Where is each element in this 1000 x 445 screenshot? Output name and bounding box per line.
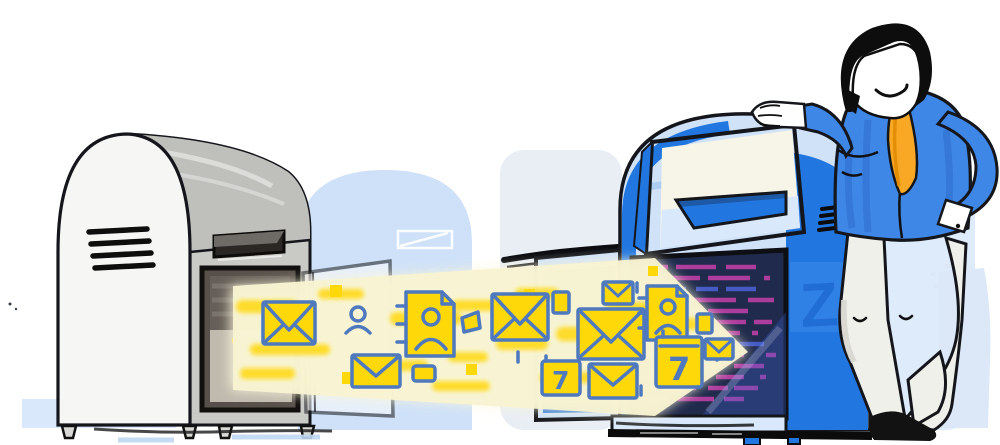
base-highlight-dashes bbox=[640, 433, 742, 434]
mailbox-watermark-letter: Z bbox=[799, 270, 840, 341]
address-book-icon bbox=[397, 292, 454, 356]
man-head bbox=[841, 23, 932, 118]
calendar-icon: 7 bbox=[542, 356, 580, 395]
cuff-button bbox=[956, 224, 960, 228]
attachment-chip-icon bbox=[553, 292, 569, 313]
mail-slot-icon bbox=[214, 231, 284, 260]
email-migration-illustration: Z bbox=[0, 0, 1000, 445]
envelope-icon bbox=[578, 309, 644, 359]
migration-arrow: 7 7 bbox=[230, 258, 748, 416]
envelope-icon bbox=[352, 355, 400, 387]
source-mailbox-front bbox=[58, 134, 190, 425]
attachment-chip-icon bbox=[697, 314, 712, 333]
envelope-icon bbox=[263, 302, 315, 344]
envelope-icon bbox=[492, 294, 548, 340]
calendar-icon: 7 bbox=[656, 331, 702, 388]
ground-scribble bbox=[94, 429, 332, 432]
envelope-icon bbox=[705, 339, 733, 359]
speckle bbox=[15, 308, 17, 310]
envelope-icon bbox=[589, 364, 637, 398]
attachment-chip-icon bbox=[413, 366, 435, 381]
calendar-day-large: 7 bbox=[668, 350, 690, 388]
envelope-icon bbox=[603, 282, 633, 304]
illustration-canvas: Z bbox=[0, 0, 1000, 445]
ground-shadow-dashes bbox=[118, 437, 320, 440]
calendar-day-small: 7 bbox=[552, 366, 569, 395]
speckle bbox=[9, 303, 12, 306]
mailbox-foot bbox=[744, 437, 760, 445]
mailbox-foot bbox=[788, 437, 800, 444]
